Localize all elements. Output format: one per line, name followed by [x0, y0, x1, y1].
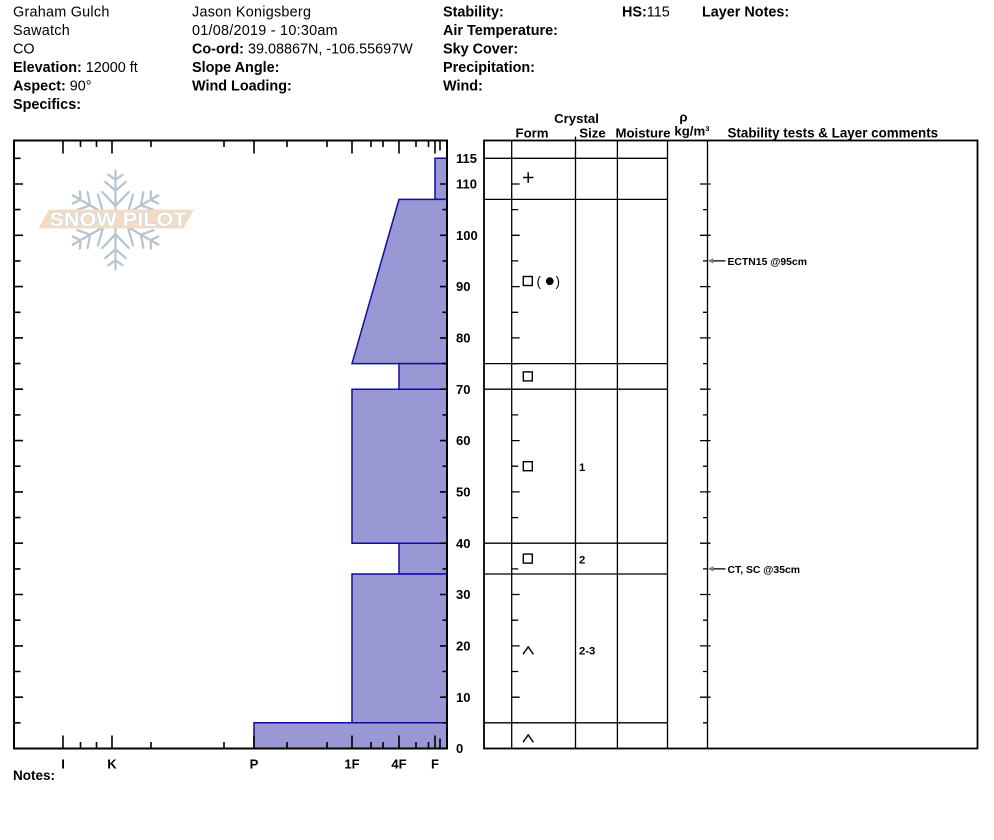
svg-text:ECTN15 @95cm: ECTN15 @95cm — [728, 257, 807, 268]
svg-text:1: 1 — [579, 462, 585, 474]
svg-text:Precipitation:: Precipitation: — [443, 60, 535, 76]
svg-text:01/08/2019 - 10:30am: 01/08/2019 - 10:30am — [192, 23, 338, 39]
svg-text:Sawatch: Sawatch — [13, 23, 70, 39]
svg-text:2-3: 2-3 — [579, 645, 595, 657]
svg-text:CT, SC @35cm: CT, SC @35cm — [728, 565, 801, 576]
svg-text:10: 10 — [456, 690, 470, 705]
svg-text:HS:115: HS:115 — [622, 5, 670, 21]
svg-text:1F: 1F — [344, 757, 359, 772]
svg-text:Stability tests & Layer commen: Stability tests & Layer comments — [728, 126, 939, 141]
svg-text:90: 90 — [456, 279, 470, 294]
svg-text:Aspect: 90°: Aspect: 90° — [13, 79, 92, 95]
svg-text:SNOW PILOT: SNOW PILOT — [50, 210, 187, 231]
svg-text:115: 115 — [456, 151, 477, 166]
svg-text:Wind Loading:: Wind Loading: — [192, 79, 292, 95]
svg-text:(: ( — [537, 274, 542, 289]
svg-text:Elevation: 12000 ft: Elevation: 12000 ft — [13, 60, 138, 76]
svg-text:Slope Angle:: Slope Angle: — [192, 60, 279, 76]
svg-text:70: 70 — [456, 382, 470, 397]
svg-text:100: 100 — [456, 228, 478, 243]
svg-text:P: P — [250, 757, 259, 772]
svg-text:40: 40 — [456, 536, 470, 551]
svg-text:Air Temperature:: Air Temperature: — [443, 23, 558, 39]
svg-text:ρ: ρ — [679, 110, 687, 125]
svg-text:): ) — [556, 274, 561, 289]
svg-text:Specifics:: Specifics: — [13, 97, 81, 113]
svg-text:2: 2 — [579, 555, 585, 567]
svg-text:30: 30 — [456, 587, 470, 602]
svg-text:20: 20 — [456, 639, 470, 654]
svg-text:Notes:: Notes: — [13, 768, 55, 783]
svg-text:Graham Gulch: Graham Gulch — [13, 5, 110, 21]
svg-text:K: K — [107, 757, 117, 772]
svg-text:Moisture: Moisture — [616, 126, 671, 141]
svg-text:4F: 4F — [391, 757, 406, 772]
svg-text:Layer Notes:: Layer Notes: — [702, 5, 789, 21]
svg-text:Size: Size — [579, 126, 605, 141]
svg-text:50: 50 — [456, 485, 470, 500]
svg-text:0: 0 — [456, 741, 463, 756]
svg-text:Stability:: Stability: — [443, 5, 504, 21]
svg-text:Co-ord: 39.08867N, -106.55697W: Co-ord: 39.08867N, -106.55697W — [192, 42, 413, 58]
svg-text:Form: Form — [516, 126, 549, 141]
svg-text:CO: CO — [13, 42, 35, 58]
svg-text:110: 110 — [456, 177, 477, 192]
svg-text:Wind:: Wind: — [443, 79, 483, 95]
svg-text:80: 80 — [456, 331, 470, 346]
svg-text:Crystal: Crystal — [554, 111, 599, 126]
svg-text:kg/m³: kg/m³ — [674, 124, 710, 139]
svg-text:F: F — [431, 757, 439, 772]
svg-text:60: 60 — [456, 433, 470, 448]
svg-text:Jason Konigsberg: Jason Konigsberg — [192, 5, 311, 21]
svg-text:I: I — [61, 757, 65, 772]
svg-text:Sky Cover:: Sky Cover: — [443, 42, 518, 58]
